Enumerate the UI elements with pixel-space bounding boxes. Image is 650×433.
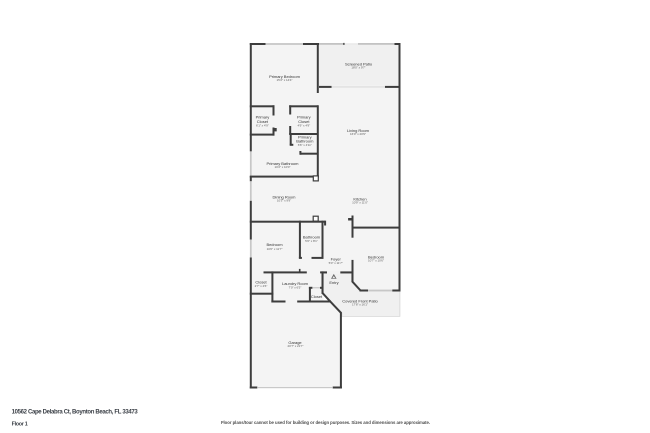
svg-text:15'2" x 14'4": 15'2" x 14'4" [277, 78, 293, 82]
svg-text:10562 Cape Delabra Ct, Boynton: 10562 Cape Delabra Ct, Boynton Beach, FL… [12, 410, 139, 416]
svg-text:6'6" x 4'11": 6'6" x 4'11" [298, 143, 312, 147]
svg-text:10'0" x 11'7": 10'0" x 11'7" [267, 247, 283, 251]
svg-text:2'7" x 4'6": 2'7" x 4'6" [255, 284, 268, 288]
svg-text:Closet: Closet [311, 294, 323, 299]
svg-text:10'3" x 9'9": 10'3" x 9'9" [277, 199, 291, 203]
svg-text:17'8" x 16'1": 17'8" x 16'1" [352, 303, 368, 307]
svg-text:10'9" x 11'0": 10'9" x 11'0" [352, 201, 368, 205]
svg-text:Floor 1: Floor 1 [12, 421, 28, 427]
svg-text:18'0" x 9'7": 18'0" x 9'7" [351, 66, 365, 70]
svg-text:10'7" x 10'6": 10'7" x 10'6" [368, 259, 384, 263]
svg-text:16'0" x 20'9": 16'0" x 20'9" [350, 132, 366, 136]
svg-text:6'1" x 4'9": 6'1" x 4'9" [256, 124, 269, 128]
svg-text:20'7" x 21'7": 20'7" x 21'7" [288, 344, 304, 348]
svg-text:7'0" x 6'5": 7'0" x 6'5" [289, 285, 302, 289]
svg-text:4'9" x 4'9": 4'9" x 4'9" [297, 124, 310, 128]
svg-text:5'0" x 8'1": 5'0" x 8'1" [305, 239, 318, 243]
svg-text:5'0" x 11'7": 5'0" x 11'7" [329, 261, 343, 265]
svg-text:Entry: Entry [329, 280, 338, 285]
svg-text:10'2" x 10'0": 10'2" x 10'0" [275, 165, 291, 169]
svg-text:Floor plans/tour cannot be use: Floor plans/tour cannot be used for buil… [221, 420, 430, 425]
